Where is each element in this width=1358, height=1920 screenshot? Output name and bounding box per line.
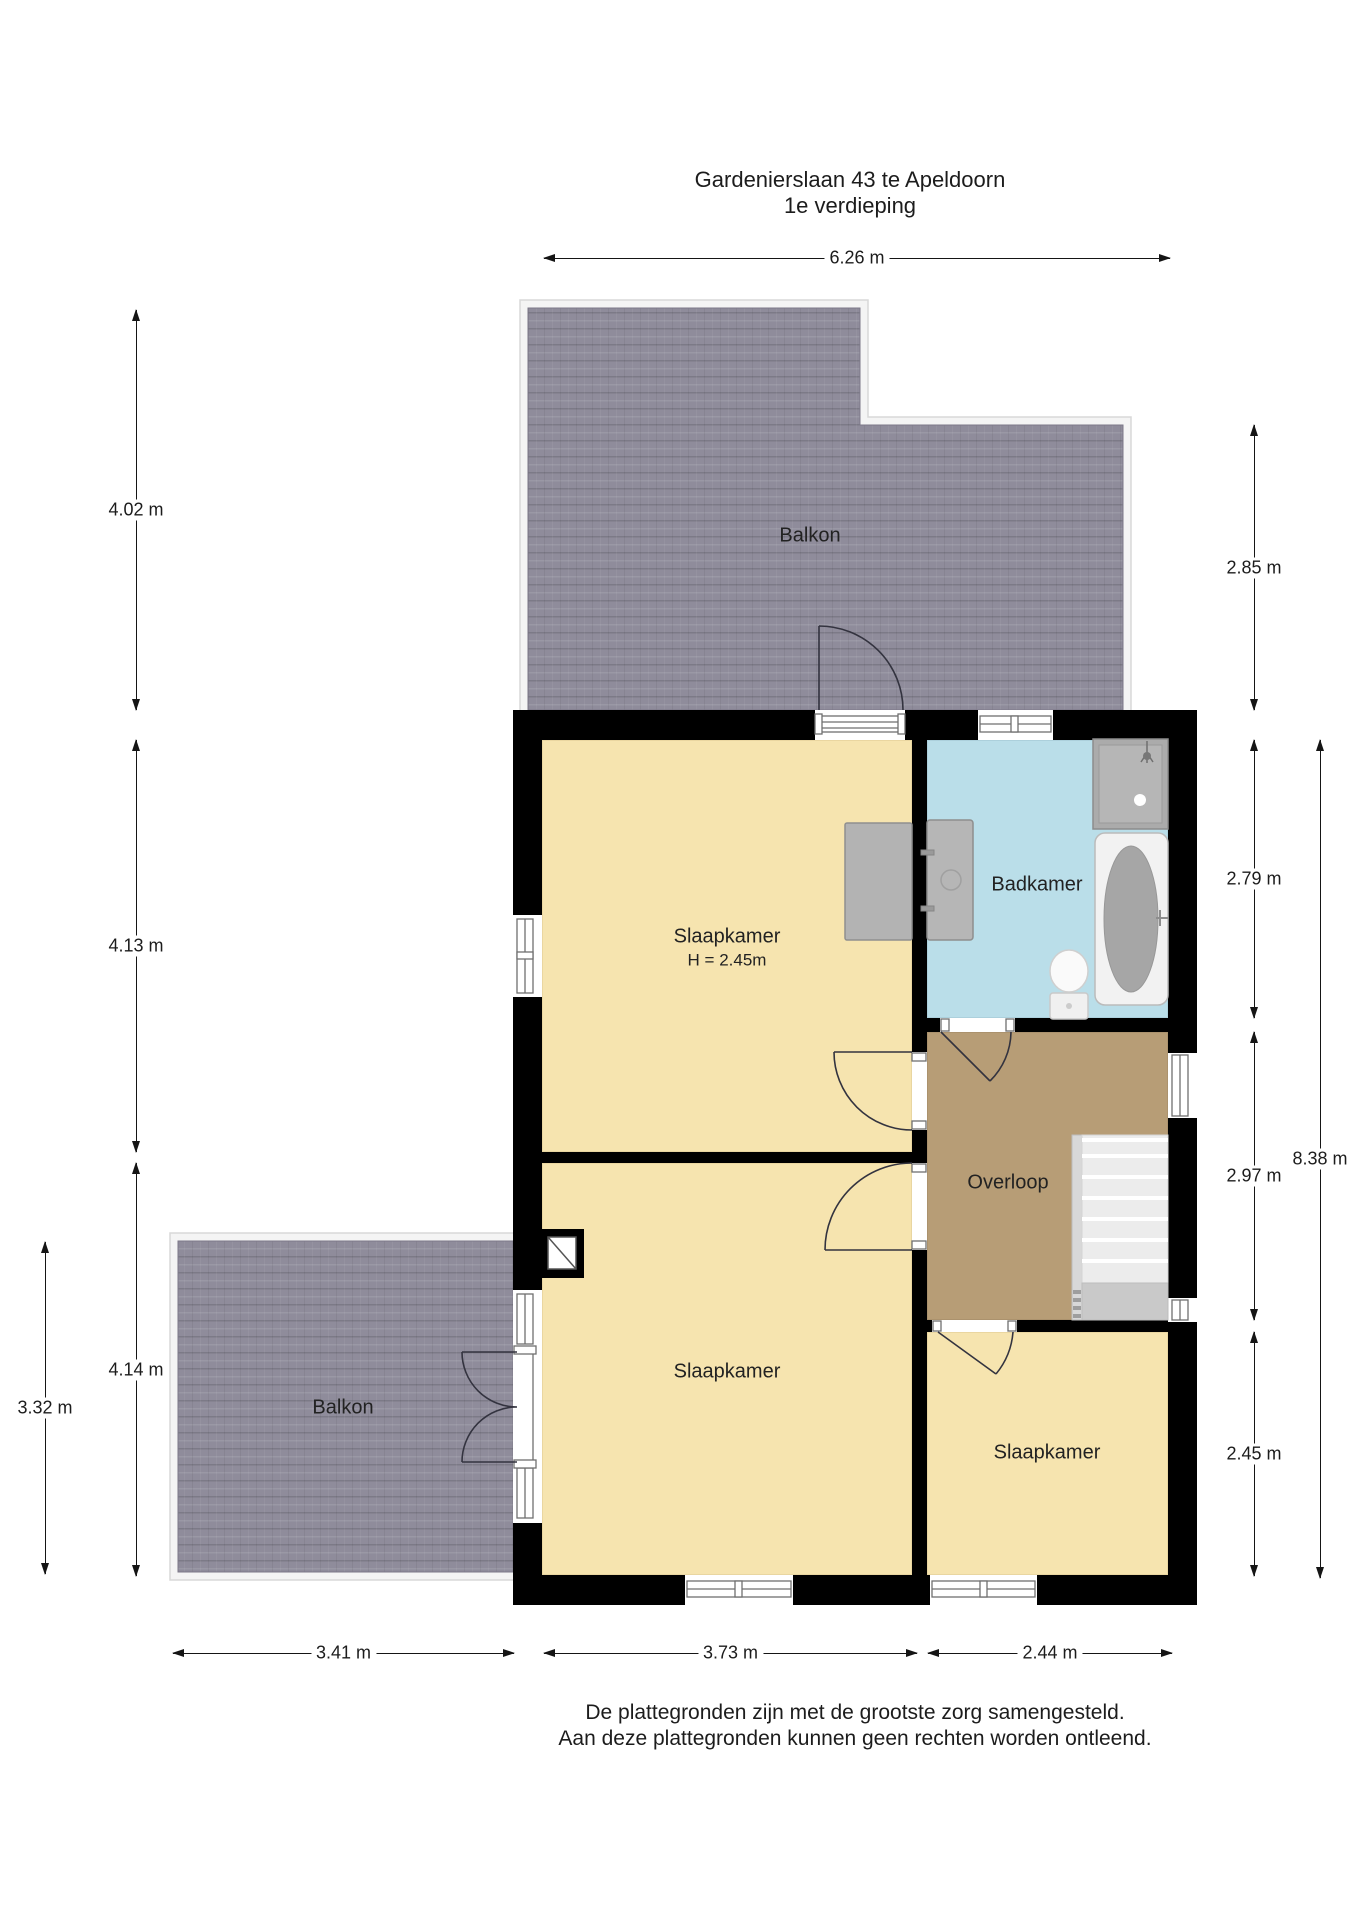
dimension-arrow (132, 1162, 140, 1174)
dimension-value: 2.45 m (1221, 1444, 1286, 1465)
page-title-line2: 1e verdieping (695, 193, 1006, 219)
bathtub (1095, 833, 1168, 1005)
opening-badkamer-door (940, 1018, 1015, 1032)
room-name: Balkon (312, 1397, 373, 1419)
dimension-left-402: 4.02 m (136, 310, 137, 710)
dimension-value: 2.97 m (1221, 1166, 1286, 1187)
opening-overloop-door (932, 1320, 1017, 1332)
dimension-arrow (543, 1649, 555, 1657)
dimension-arrow (543, 254, 555, 262)
shower (1093, 739, 1168, 829)
dimension-right-285: 2.85 m (1254, 425, 1255, 710)
dimension-arrow (1250, 1309, 1258, 1321)
room-label-slaapkamer-2: Slaapkamer (674, 1361, 781, 1384)
dimension-arrow (1316, 1567, 1324, 1579)
dimension-arrow (172, 1649, 184, 1657)
wall-between-bedrooms (542, 1152, 912, 1163)
balcony-door-threshold (817, 716, 903, 732)
room-name: Slaapkamer (994, 1442, 1101, 1464)
dimension-arrow (41, 1241, 49, 1253)
room-label-slaapkamer-1: SlaapkamerH = 2.45m (674, 926, 781, 971)
dimension-right-838: 8.38 m (1320, 740, 1321, 1578)
wall-interior-vertical (912, 740, 927, 1575)
opening-overloop-slaapkamer2 (912, 1163, 927, 1250)
dimension-arrow (132, 309, 140, 321)
dimension-value: 3.32 m (12, 1398, 77, 1419)
staircase (1072, 1135, 1168, 1320)
page-title: Gardenierslaan 43 te Apeldoorn 1e verdie… (695, 167, 1006, 219)
room-label-badkamer: Badkamer (991, 874, 1082, 897)
dimension-arrow (927, 1649, 939, 1657)
dimension-arrow (1250, 1565, 1258, 1577)
dimension-value: 2.79 m (1221, 869, 1286, 890)
floorplan-canvas: Gardenierslaan 43 te Apeldoorn 1e verdie… (0, 0, 1358, 1920)
dimension-arrow (1250, 739, 1258, 751)
dimension-right-279: 2.79 m (1254, 740, 1255, 1018)
disclaimer-footer: De plattegronden zijn met de grootste zo… (558, 1700, 1151, 1752)
dimension-arrow (503, 1649, 515, 1657)
dimension-value: 4.14 m (103, 1359, 168, 1380)
room-height-label: H = 2.45m (674, 951, 781, 971)
dimension-value: 3.73 m (698, 1643, 763, 1664)
disclaimer-line1: De plattegronden zijn met de grootste zo… (558, 1700, 1151, 1726)
dimension-bottom-373: 3.73 m (544, 1653, 917, 1654)
dimension-arrow (1159, 254, 1171, 262)
dimension-bottom-244: 2.44 m (928, 1653, 1172, 1654)
opening-overloop-slaapkamer1 (912, 1052, 927, 1130)
dimension-bottom-341: 3.41 m (173, 1653, 514, 1654)
room-name: Slaapkamer (674, 1361, 781, 1383)
room-label-balkon-bottom: Balkon (312, 1397, 373, 1420)
room-label-balkon-top: Balkon (779, 525, 840, 548)
disclaimer-line2: Aan deze plattegronden kunnen geen recht… (558, 1726, 1151, 1752)
dimension-arrow (1250, 699, 1258, 711)
balcony-top-floor (528, 308, 1123, 710)
wardrobe (845, 823, 912, 940)
dimension-value: 2.85 m (1221, 557, 1286, 578)
dimension-value: 4.13 m (103, 936, 168, 957)
room-name: Overloop (967, 1172, 1048, 1194)
room-name: Balkon (779, 525, 840, 547)
washbasin (921, 820, 973, 940)
dimension-right-245: 2.45 m (1254, 1332, 1255, 1576)
dimension-arrow (1250, 1007, 1258, 1019)
dimension-left-332: 3.32 m (45, 1242, 46, 1574)
dimension-left-413: 4.13 m (136, 740, 137, 1152)
dimension-value: 4.02 m (103, 500, 168, 521)
dimension-arrow (1316, 739, 1324, 751)
dimension-arrow (1161, 1649, 1173, 1657)
dimension-value: 6.26 m (824, 248, 889, 269)
stair-landing (1082, 1283, 1168, 1320)
dimension-top-626: 6.26 m (544, 258, 1170, 259)
dimension-value: 2.44 m (1017, 1643, 1082, 1664)
dimension-arrow (132, 739, 140, 751)
dimension-arrow (1250, 1331, 1258, 1343)
room-name: Slaapkamer (674, 926, 781, 948)
dimension-arrow (1250, 1031, 1258, 1043)
dimension-value: 3.41 m (311, 1643, 376, 1664)
wall-bottom (513, 1575, 1197, 1605)
page-title-line1: Gardenierslaan 43 te Apeldoorn (695, 167, 1006, 193)
room-name: Badkamer (991, 874, 1082, 896)
dimension-left-414: 4.14 m (136, 1163, 137, 1576)
dimension-arrow (906, 1649, 918, 1657)
dimension-arrow (132, 1141, 140, 1153)
dimension-arrow (41, 1563, 49, 1575)
room-label-slaapkamer-3: Slaapkamer (994, 1442, 1101, 1465)
dimension-arrow (1250, 424, 1258, 436)
room-label-overloop: Overloop (967, 1172, 1048, 1195)
dimension-arrow (132, 699, 140, 711)
dimension-arrow (132, 1565, 140, 1577)
wall-right (1168, 710, 1197, 1605)
dimension-right-297: 2.97 m (1254, 1032, 1255, 1320)
toilet (1050, 950, 1088, 1019)
dimension-value: 8.38 m (1287, 1149, 1352, 1170)
